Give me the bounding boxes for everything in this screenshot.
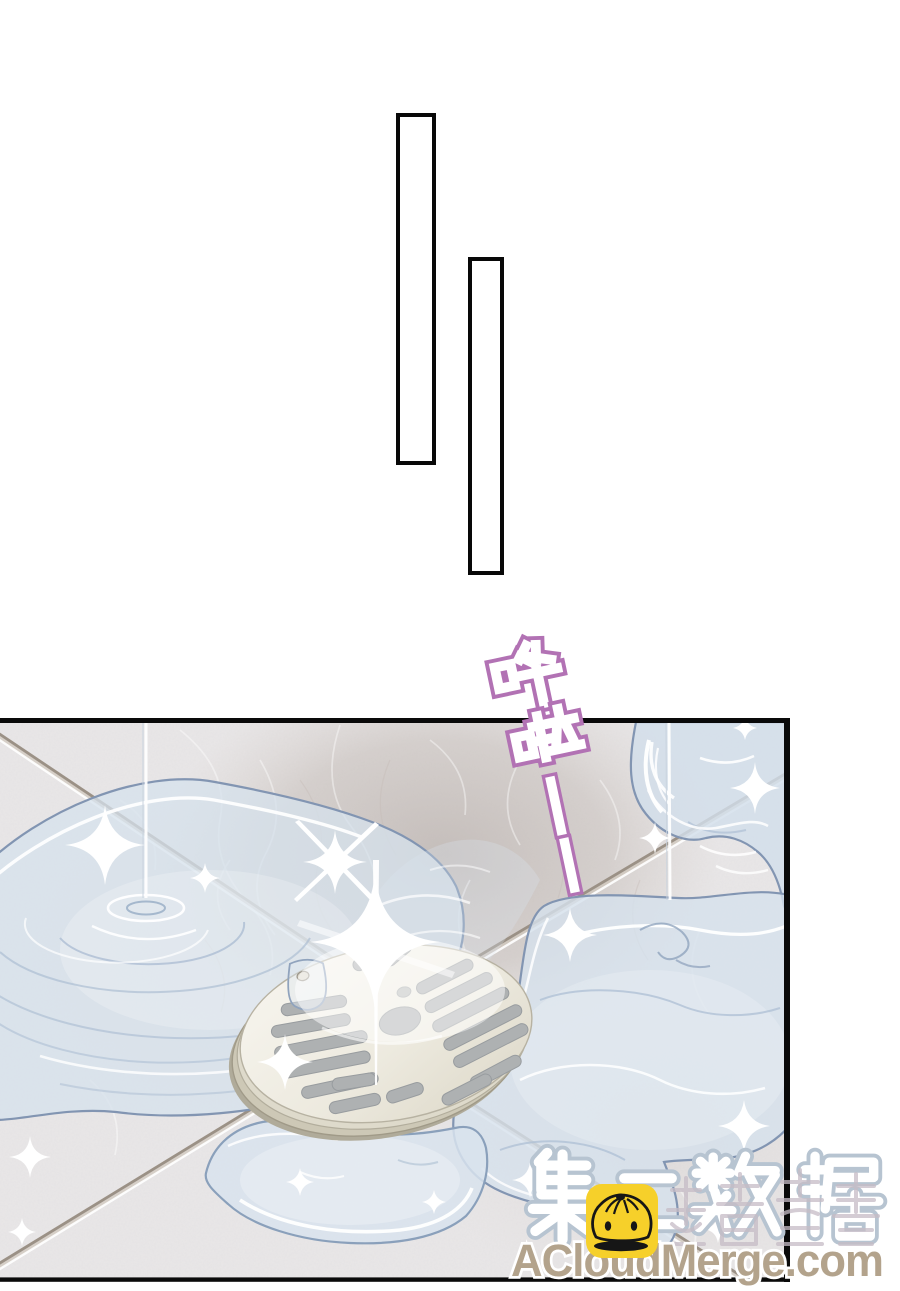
svg-text:ACloudMerge.com: ACloudMerge.com: [511, 1235, 883, 1286]
